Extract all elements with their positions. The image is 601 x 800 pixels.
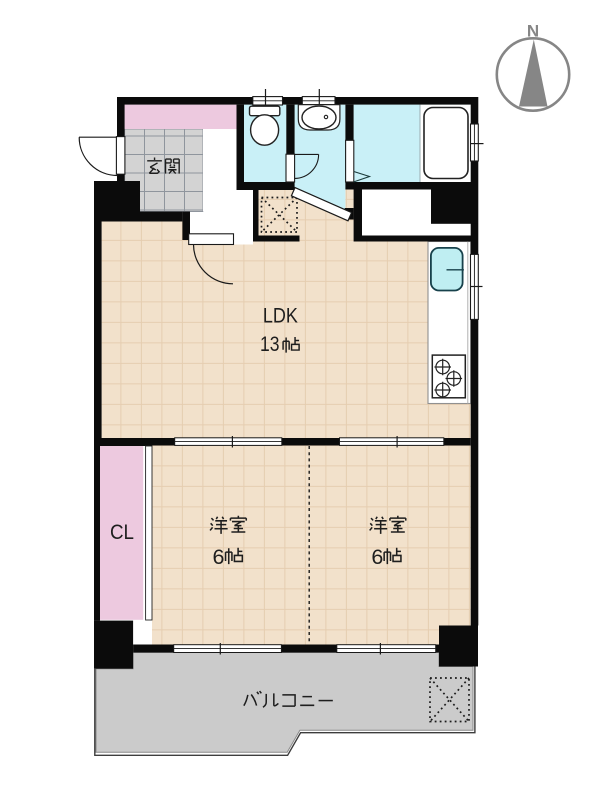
svg-text:13: 13 [260,332,280,356]
svg-text:N: N [527,22,539,41]
svg-text:6: 6 [213,545,225,569]
svg-text:CL: CL [110,521,134,544]
svg-text:6: 6 [371,545,383,569]
svg-text:LDK: LDK [263,303,299,327]
